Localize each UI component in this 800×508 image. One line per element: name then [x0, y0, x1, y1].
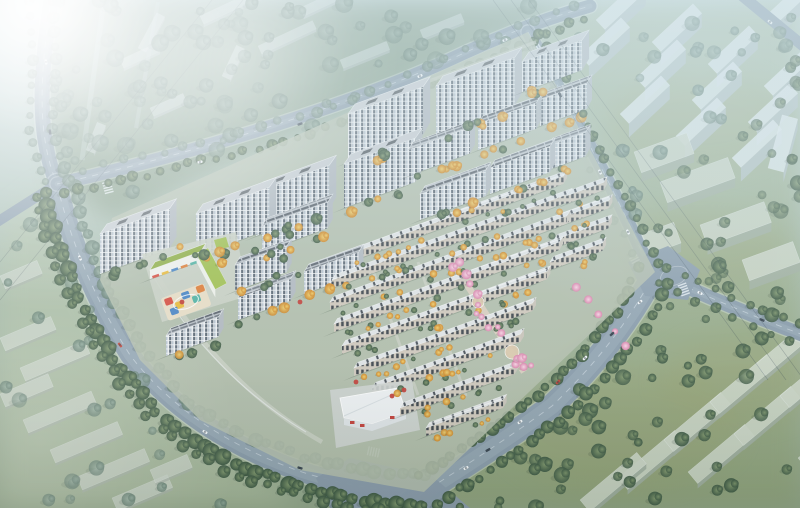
- aerial-rendering: Aerial rendering of a residential develo…: [0, 0, 800, 508]
- haze-overlay: [0, 0, 800, 508]
- render-canvas: Aerial rendering of a residential develo…: [0, 0, 800, 508]
